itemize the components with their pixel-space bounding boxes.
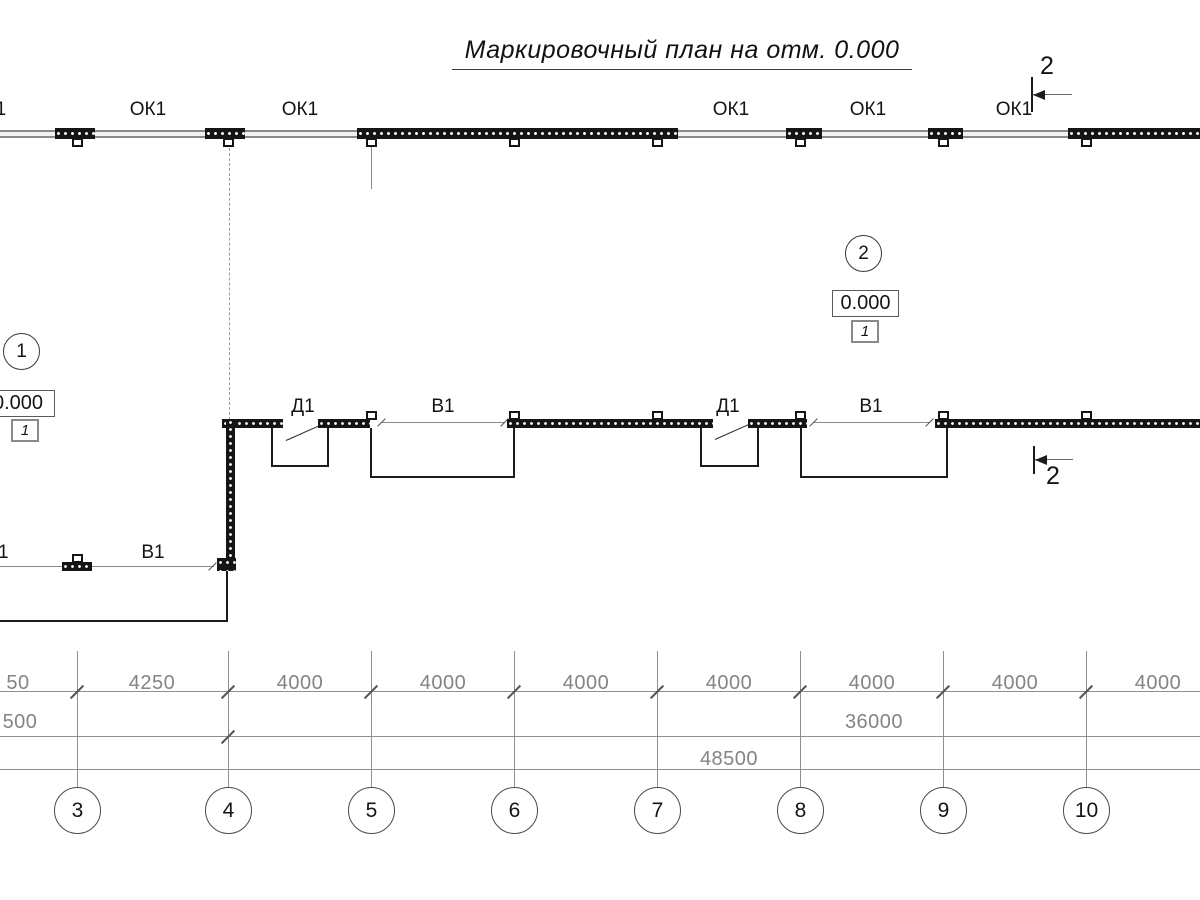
detail-ref-box: 1	[11, 419, 39, 442]
wall-strip	[62, 562, 92, 571]
gate-recess-outline	[370, 428, 515, 478]
dim-value: 36000	[824, 711, 924, 734]
elevation-value-box: 0.000	[0, 390, 55, 417]
dim-value: 4000	[403, 672, 483, 695]
axis-bubble: 7	[634, 787, 681, 834]
window-label: ОК1	[0, 99, 18, 121]
axis-line	[77, 651, 78, 787]
dim-value: 4250	[112, 672, 192, 695]
window-label: ОК1	[701, 99, 761, 121]
porch-outline	[700, 428, 759, 467]
porch-outline	[271, 428, 329, 467]
wall-strip-vertical	[226, 419, 235, 571]
wall-strip	[507, 419, 713, 428]
wall-corner	[217, 558, 236, 571]
column-tab	[1081, 138, 1092, 147]
column-tab	[938, 138, 949, 147]
section-label: 2	[1046, 462, 1060, 491]
detail-ref-box: 1	[851, 320, 879, 343]
axis-bubble: 5	[348, 787, 395, 834]
gate-opening-line	[381, 422, 505, 423]
column-tab	[72, 554, 83, 563]
wall-strip	[748, 419, 807, 428]
axis-line	[371, 651, 372, 787]
window-label: ОК1	[118, 99, 178, 121]
axis-bubble: 3	[54, 787, 101, 834]
column-tab	[509, 138, 520, 147]
building-edge-outline	[0, 571, 228, 622]
column-tab	[366, 411, 377, 420]
gate-label: В1	[413, 396, 473, 418]
gate-opening-line	[813, 422, 930, 423]
dim-value: 500	[0, 711, 44, 734]
leader-line	[371, 143, 372, 189]
column-tab	[795, 411, 806, 420]
axis-line	[228, 651, 229, 787]
dim-line-2	[0, 736, 1200, 737]
column-tab	[795, 138, 806, 147]
hidden-edge-dashed-line	[229, 143, 230, 420]
wall-strip	[318, 419, 370, 428]
dim-value: 4000	[1118, 672, 1198, 695]
node-marker-1: 1	[3, 333, 40, 370]
dim-value: 4000	[260, 672, 340, 695]
axis-bubble: 9	[920, 787, 967, 834]
column-tab	[366, 138, 377, 147]
door-label: Д1	[698, 396, 758, 418]
node-marker-2: 2	[845, 235, 882, 272]
axis-line	[943, 651, 944, 787]
gate-label: В1	[123, 542, 183, 564]
wall-strip	[935, 419, 1200, 428]
dim-value: 48500	[679, 748, 779, 771]
axis-line	[1086, 651, 1087, 787]
gate-opening-line	[0, 566, 214, 567]
drawing-sheet: Маркировочный план на отм. 0.000 ОК1 ОК1…	[0, 0, 1200, 900]
gate-label: В1	[0, 542, 27, 564]
door-label: Д1	[273, 396, 333, 418]
axis-bubble: 8	[777, 787, 824, 834]
section-label: 2	[1040, 52, 1054, 81]
axis-line	[657, 651, 658, 787]
dim-value: 4000	[832, 672, 912, 695]
gate-label: В1	[841, 396, 901, 418]
column-tab	[652, 411, 663, 420]
section-arrow-icon	[1033, 90, 1045, 100]
axis-line	[514, 651, 515, 787]
axis-line	[800, 651, 801, 787]
dim-value: 50	[0, 672, 36, 695]
gate-recess-outline	[800, 428, 948, 478]
column-tab	[1081, 411, 1092, 420]
axis-bubble: 4	[205, 787, 252, 834]
dim-value: 4000	[975, 672, 1055, 695]
axis-bubble: 10	[1063, 787, 1110, 834]
column-tab	[509, 411, 520, 420]
plan-title: Маркировочный план на отм. 0.000	[452, 36, 912, 70]
dim-value: 4000	[546, 672, 626, 695]
dim-line-3	[0, 769, 1200, 770]
axis-bubble: 6	[491, 787, 538, 834]
dim-value: 4000	[689, 672, 769, 695]
window-label: ОК1	[270, 99, 330, 121]
window-label: ОК1	[984, 99, 1044, 121]
window-label: ОК1	[838, 99, 898, 121]
column-tab	[72, 138, 83, 147]
column-tab	[652, 138, 663, 147]
column-tab	[938, 411, 949, 420]
column-tab	[223, 138, 234, 147]
elevation-value-box: 0.000	[832, 290, 899, 317]
